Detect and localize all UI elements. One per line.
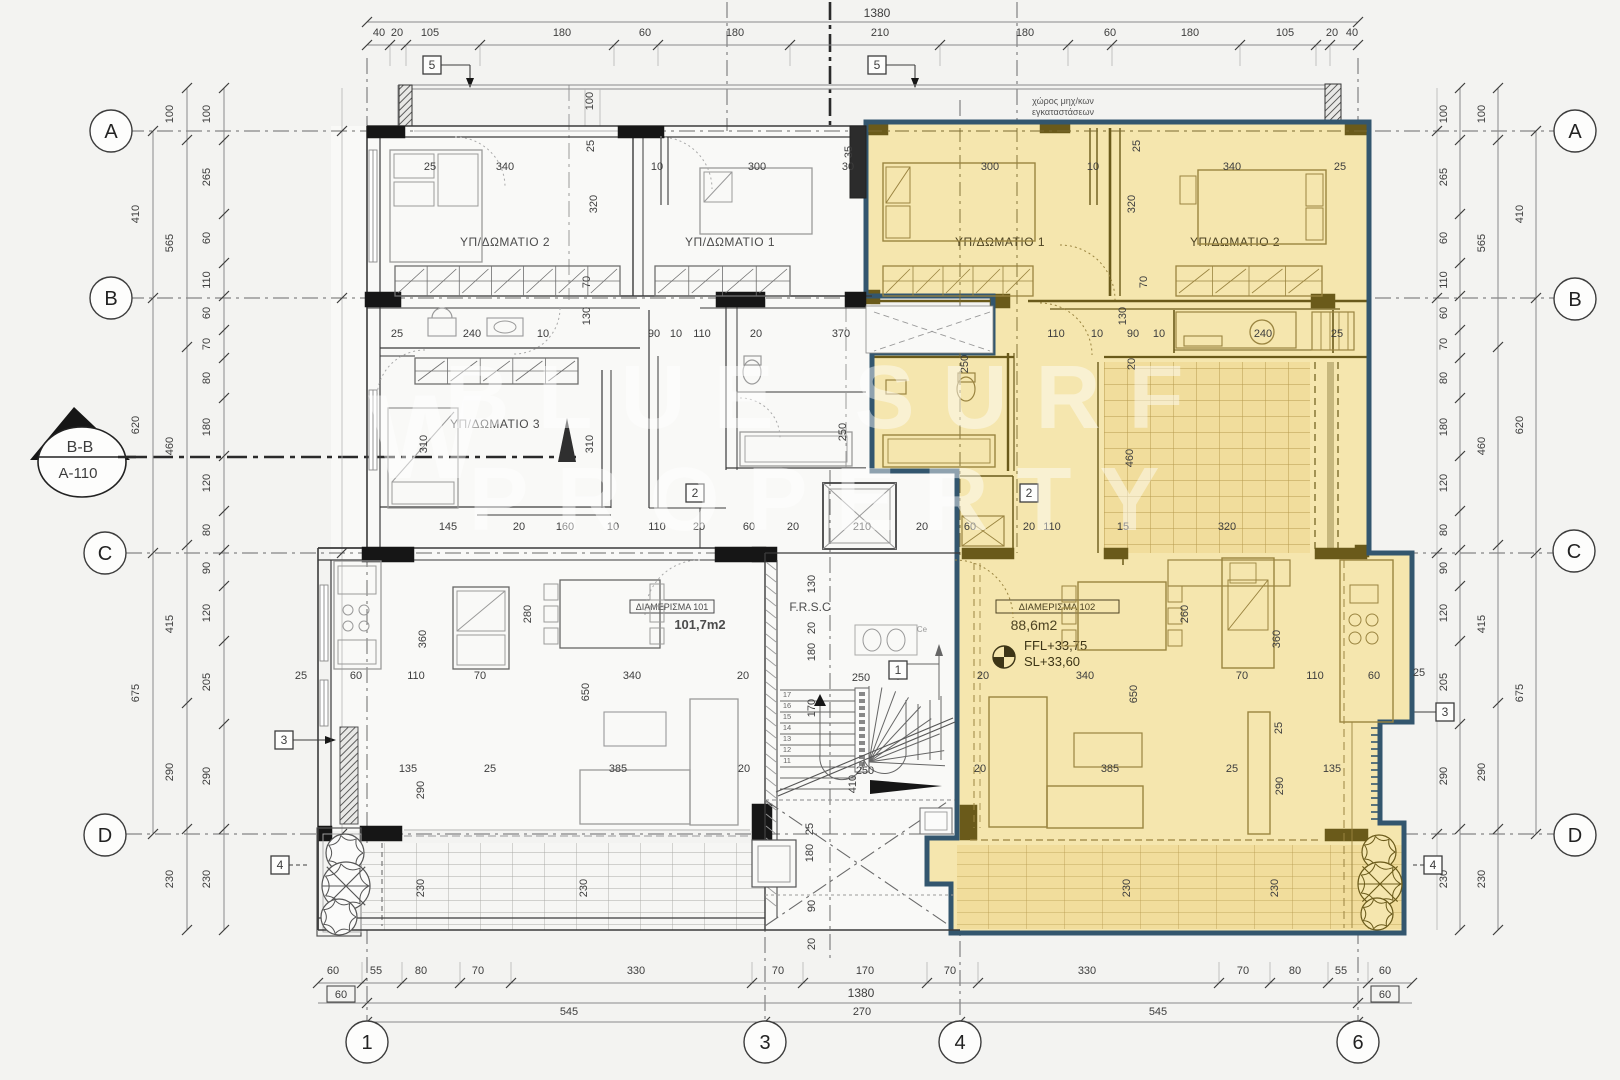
svg-text:εγκαταστάσεων: εγκαταστάσεων [1032, 107, 1095, 117]
svg-text:60: 60 [1438, 232, 1450, 244]
svg-text:100: 100 [1476, 105, 1488, 123]
svg-text:20: 20 [1326, 27, 1338, 39]
svg-text:565: 565 [1476, 234, 1488, 252]
svg-text:C: C [1567, 541, 1581, 563]
svg-text:320: 320 [1218, 521, 1236, 533]
svg-text:330: 330 [1078, 965, 1096, 977]
svg-text:25: 25 [1334, 161, 1346, 173]
svg-text:320: 320 [588, 195, 600, 213]
svg-text:130: 130 [806, 575, 818, 593]
svg-text:60: 60 [1379, 989, 1391, 1001]
svg-text:70: 70 [201, 338, 213, 350]
svg-text:240: 240 [1254, 328, 1272, 340]
svg-text:10: 10 [1087, 161, 1099, 173]
svg-text:675: 675 [1514, 684, 1526, 702]
svg-text:D: D [1568, 825, 1582, 847]
svg-text:13: 13 [783, 734, 791, 743]
svg-text:180: 180 [553, 27, 571, 39]
svg-text:10: 10 [1153, 328, 1165, 340]
svg-text:Ce: Ce [917, 625, 928, 634]
svg-text:1380: 1380 [848, 986, 875, 1000]
svg-text:100: 100 [584, 92, 596, 110]
svg-text:110: 110 [1047, 328, 1065, 340]
svg-text:120: 120 [1438, 604, 1450, 622]
svg-text:PROPERTY: PROPERTY [468, 450, 1187, 550]
svg-text:70: 70 [1237, 965, 1249, 977]
svg-text:280: 280 [522, 605, 534, 623]
svg-text:290: 290 [201, 767, 213, 785]
svg-text:10: 10 [651, 161, 663, 173]
svg-text:230: 230 [164, 870, 176, 888]
svg-text:70: 70 [472, 965, 484, 977]
svg-text:5: 5 [874, 58, 881, 72]
svg-text:230: 230 [1269, 879, 1281, 897]
svg-text:40: 40 [373, 27, 385, 39]
svg-text:ΔΙΑΜΕΡΙΣΜΑ 102: ΔΙΑΜΕΡΙΣΜΑ 102 [1019, 602, 1096, 613]
svg-text:60: 60 [201, 307, 213, 319]
svg-text:565: 565 [164, 234, 176, 252]
svg-text:120: 120 [201, 604, 213, 622]
svg-text:25: 25 [1331, 328, 1343, 340]
svg-text:330: 330 [627, 965, 645, 977]
svg-text:135: 135 [1323, 763, 1341, 775]
svg-text:60: 60 [1379, 965, 1391, 977]
svg-text:410: 410 [130, 205, 142, 223]
svg-text:C: C [98, 543, 112, 565]
svg-text:B: B [1568, 289, 1581, 311]
svg-text:60: 60 [1438, 307, 1450, 319]
svg-text:340: 340 [1076, 670, 1094, 682]
svg-text:145: 145 [439, 521, 457, 533]
svg-text:55: 55 [1335, 965, 1347, 977]
svg-text:6: 6 [1352, 1032, 1363, 1054]
svg-text:130: 130 [581, 307, 593, 325]
svg-text:88,6m2: 88,6m2 [1011, 617, 1058, 633]
svg-text:105: 105 [1276, 27, 1294, 39]
svg-text:135: 135 [399, 763, 417, 775]
svg-text:110: 110 [693, 328, 711, 340]
svg-text:180: 180 [726, 27, 744, 39]
svg-text:20: 20 [391, 27, 403, 39]
svg-text:340: 340 [623, 670, 641, 682]
svg-text:35: 35 [843, 146, 855, 158]
svg-text:20: 20 [974, 763, 986, 775]
svg-text:25: 25 [295, 670, 307, 682]
svg-text:180: 180 [804, 844, 816, 862]
svg-text:385: 385 [1101, 763, 1119, 775]
svg-text:1380: 1380 [864, 6, 891, 20]
svg-text:5: 5 [429, 58, 436, 72]
svg-text:11: 11 [783, 756, 791, 765]
svg-text:90: 90 [1438, 562, 1450, 574]
svg-text:80: 80 [201, 524, 213, 536]
svg-text:60: 60 [201, 232, 213, 244]
svg-text:340: 340 [1223, 161, 1241, 173]
svg-text:180: 180 [1016, 27, 1034, 39]
svg-text:545: 545 [1149, 1006, 1167, 1018]
svg-text:B-B: B-B [67, 439, 94, 456]
svg-text:25: 25 [585, 140, 597, 152]
svg-text:110: 110 [201, 271, 213, 289]
svg-text:270: 270 [853, 1006, 871, 1018]
svg-text:40: 40 [1346, 27, 1358, 39]
svg-text:101,7m2: 101,7m2 [674, 617, 725, 632]
svg-text:100: 100 [1438, 105, 1450, 123]
svg-text:545: 545 [560, 1006, 578, 1018]
svg-text:10: 10 [1091, 328, 1103, 340]
svg-text:120: 120 [1438, 474, 1450, 492]
svg-text:ΔΙΑΜΕΡΙΣΜΑ 101: ΔΙΑΜΕΡΙΣΜΑ 101 [636, 602, 709, 612]
svg-text:1: 1 [895, 663, 902, 677]
svg-text:ΥΠ/ΔΩΜΑΤΙΟ 1: ΥΠ/ΔΩΜΑΤΙΟ 1 [685, 235, 775, 249]
svg-text:110: 110 [1306, 670, 1324, 682]
svg-text:B: B [104, 288, 117, 310]
svg-text:12: 12 [783, 745, 791, 754]
svg-text:25: 25 [424, 161, 436, 173]
svg-text:4: 4 [954, 1032, 965, 1054]
svg-text:80: 80 [1438, 372, 1450, 384]
svg-text:60: 60 [639, 27, 651, 39]
svg-text:25: 25 [804, 823, 816, 835]
svg-text:180: 180 [1438, 418, 1450, 436]
svg-text:80: 80 [201, 372, 213, 384]
svg-text:20: 20 [737, 670, 749, 682]
svg-text:25: 25 [1131, 140, 1143, 152]
svg-text:10: 10 [537, 328, 549, 340]
svg-text:180: 180 [806, 643, 818, 661]
svg-text:70: 70 [944, 965, 956, 977]
svg-text:210: 210 [871, 27, 889, 39]
svg-text:265: 265 [1438, 168, 1450, 186]
svg-text:ΥΠ/ΔΩΜΑΤΙΟ 1: ΥΠ/ΔΩΜΑΤΙΟ 1 [955, 235, 1045, 249]
svg-text:χώρος μηχ/κων: χώρος μηχ/κων [1032, 96, 1094, 106]
svg-text:340: 340 [496, 161, 514, 173]
svg-text:300: 300 [748, 161, 766, 173]
svg-text:370: 370 [832, 328, 850, 340]
svg-text:3: 3 [1442, 705, 1449, 719]
svg-text:25: 25 [1273, 722, 1285, 734]
svg-text:70: 70 [1236, 670, 1248, 682]
svg-text:A-110: A-110 [59, 465, 98, 482]
svg-text:A: A [1568, 121, 1582, 143]
svg-text:20: 20 [806, 622, 818, 634]
svg-text:415: 415 [164, 615, 176, 633]
svg-text:260: 260 [1179, 605, 1191, 623]
svg-text:55: 55 [370, 965, 382, 977]
svg-text:290: 290 [164, 763, 176, 781]
svg-text:90: 90 [201, 562, 213, 574]
svg-text:205: 205 [1438, 673, 1450, 691]
svg-text:360: 360 [1271, 630, 1283, 648]
svg-text:650: 650 [580, 683, 592, 701]
svg-text:80: 80 [1289, 965, 1301, 977]
svg-text:16: 16 [783, 701, 791, 710]
svg-text:100: 100 [201, 105, 213, 123]
svg-text:20: 20 [750, 328, 762, 340]
svg-text:20: 20 [738, 763, 750, 775]
svg-text:70: 70 [581, 276, 593, 288]
svg-text:70: 70 [474, 670, 486, 682]
svg-text:SL+33,60: SL+33,60 [1024, 654, 1080, 669]
svg-text:3: 3 [759, 1032, 770, 1054]
svg-text:60: 60 [327, 965, 339, 977]
svg-text:ΥΠ/ΔΩΜΑΤΙΟ 2: ΥΠ/ΔΩΜΑΤΙΟ 2 [1190, 235, 1280, 249]
svg-text:290: 290 [1476, 763, 1488, 781]
svg-text:4: 4 [277, 858, 284, 872]
svg-text:130: 130 [1117, 307, 1129, 325]
svg-text:30: 30 [842, 161, 854, 173]
svg-text:ΥΠ/ΔΩΜΑΤΙΟ 2: ΥΠ/ΔΩΜΑΤΙΟ 2 [460, 235, 550, 249]
svg-text:410: 410 [1514, 205, 1526, 223]
svg-text:60: 60 [335, 989, 347, 1001]
svg-text:110: 110 [1438, 271, 1450, 289]
svg-text:230: 230 [1476, 870, 1488, 888]
svg-text:25: 25 [484, 763, 496, 775]
svg-text:240: 240 [463, 328, 481, 340]
svg-text:BLUE SURF: BLUE SURF [445, 348, 1212, 448]
svg-text:120: 120 [201, 474, 213, 492]
svg-text:80: 80 [1438, 524, 1450, 536]
svg-text:180: 180 [1181, 27, 1199, 39]
svg-text:D: D [98, 825, 112, 847]
svg-text:70: 70 [1138, 276, 1150, 288]
svg-text:90: 90 [1127, 328, 1139, 340]
svg-text:70: 70 [1438, 338, 1450, 350]
svg-text:15: 15 [783, 712, 791, 721]
svg-text:90: 90 [806, 900, 818, 912]
svg-text:290: 290 [415, 781, 427, 799]
svg-text:170: 170 [856, 965, 874, 977]
svg-text:25: 25 [1226, 763, 1238, 775]
svg-text:100: 100 [164, 105, 176, 123]
svg-text:F.R.S.C: F.R.S.C [789, 600, 831, 614]
svg-text:105: 105 [421, 27, 439, 39]
svg-text:110: 110 [407, 670, 425, 682]
svg-text:180: 180 [201, 418, 213, 436]
svg-text:265: 265 [201, 168, 213, 186]
svg-text:675: 675 [130, 684, 142, 702]
svg-text:170: 170 [806, 699, 818, 717]
svg-text:60: 60 [350, 670, 362, 682]
svg-text:410: 410 [847, 775, 859, 793]
svg-text:620: 620 [1514, 416, 1526, 434]
svg-text:460: 460 [1476, 437, 1488, 455]
svg-text:60: 60 [1368, 670, 1380, 682]
svg-text:650: 650 [1128, 685, 1140, 703]
svg-text:90: 90 [648, 328, 660, 340]
svg-text:360: 360 [417, 630, 429, 648]
svg-text:320: 320 [1126, 195, 1138, 213]
svg-text:20: 20 [806, 938, 818, 950]
svg-text:300: 300 [981, 161, 999, 173]
svg-text:205: 205 [201, 673, 213, 691]
svg-text:385: 385 [609, 763, 627, 775]
svg-text:25: 25 [1413, 667, 1425, 679]
svg-text:25: 25 [391, 328, 403, 340]
svg-text:250: 250 [852, 672, 870, 684]
svg-text:290: 290 [1438, 767, 1450, 785]
svg-text:A: A [104, 121, 118, 143]
svg-text:620: 620 [130, 416, 142, 434]
svg-text:80: 80 [415, 965, 427, 977]
svg-text:60: 60 [1104, 27, 1116, 39]
svg-text:17: 17 [783, 690, 791, 699]
svg-text:20: 20 [977, 670, 989, 682]
svg-text:290: 290 [1274, 777, 1286, 795]
svg-text:230: 230 [578, 879, 590, 897]
svg-text:W: W [368, 370, 482, 504]
svg-text:415: 415 [1476, 615, 1488, 633]
svg-text:1: 1 [361, 1032, 372, 1054]
svg-text:70: 70 [772, 965, 784, 977]
svg-text:460: 460 [164, 437, 176, 455]
svg-text:4: 4 [1430, 858, 1437, 872]
svg-text:230: 230 [415, 879, 427, 897]
svg-text:230: 230 [1121, 879, 1133, 897]
svg-text:230: 230 [201, 870, 213, 888]
svg-text:14: 14 [783, 723, 791, 732]
svg-text:3: 3 [281, 733, 288, 747]
svg-text:10: 10 [670, 328, 682, 340]
